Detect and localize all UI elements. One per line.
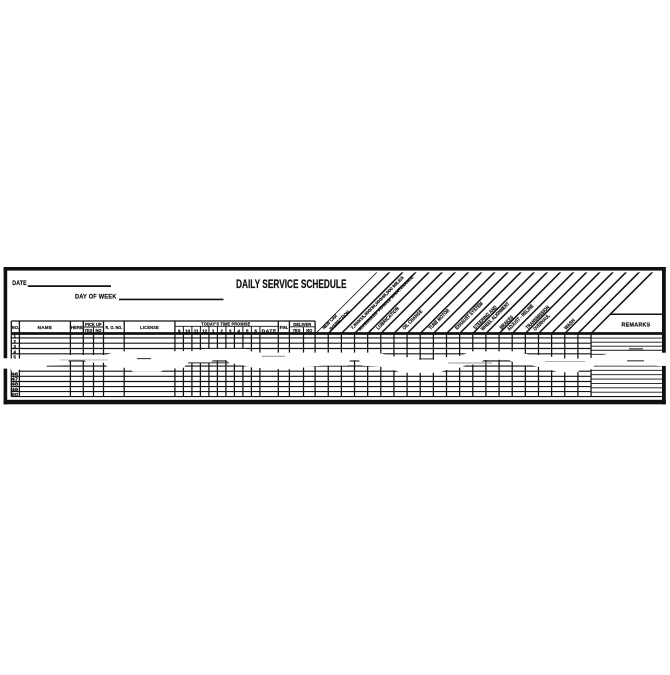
svg-text:R. O. NO.: R. O. NO. xyxy=(105,325,122,330)
svg-text:HERE: HERE xyxy=(71,325,83,330)
svg-text:5: 5 xyxy=(246,328,249,333)
svg-text:12: 12 xyxy=(202,328,208,333)
svg-text:50: 50 xyxy=(11,392,19,397)
svg-text:DATE: DATE xyxy=(12,280,26,287)
svg-text:DAILY SERVICE SCHEDULE: DAILY SERVICE SCHEDULE xyxy=(236,277,347,291)
svg-text:NO: NO xyxy=(96,328,103,333)
svg-text:NO: NO xyxy=(306,328,313,333)
svg-text:NAME: NAME xyxy=(38,325,53,330)
svg-text:YES: YES xyxy=(293,328,301,333)
svg-text:FIN.: FIN. xyxy=(280,325,289,330)
svg-text:4: 4 xyxy=(237,328,240,333)
svg-text:PICK UP: PICK UP xyxy=(85,322,102,327)
svg-text:LICENSE: LICENSE xyxy=(140,325,159,330)
svg-text:DATE: DATE xyxy=(262,328,277,333)
svg-text:1: 1 xyxy=(212,328,215,333)
svg-text:YES: YES xyxy=(84,328,92,333)
svg-text:3: 3 xyxy=(229,328,232,333)
svg-text:2: 2 xyxy=(220,328,223,333)
svg-text:3: 3 xyxy=(13,344,16,349)
svg-text:11: 11 xyxy=(194,328,199,333)
svg-text:4: 4 xyxy=(13,349,16,354)
svg-text:9: 9 xyxy=(178,328,181,333)
svg-text:1: 1 xyxy=(13,334,16,339)
svg-text:REMARKS: REMARKS xyxy=(622,322,651,328)
svg-text:TODAY’S TIME PROMISE: TODAY’S TIME PROMISE xyxy=(201,322,250,327)
svg-text:10: 10 xyxy=(185,328,191,333)
svg-text:NO.: NO. xyxy=(12,325,19,330)
svg-text:6: 6 xyxy=(254,328,257,333)
svg-text:DELIVER: DELIVER xyxy=(293,322,312,327)
svg-text:DAY OF WEEK: DAY OF WEEK xyxy=(75,294,117,301)
svg-text:2: 2 xyxy=(13,339,16,344)
